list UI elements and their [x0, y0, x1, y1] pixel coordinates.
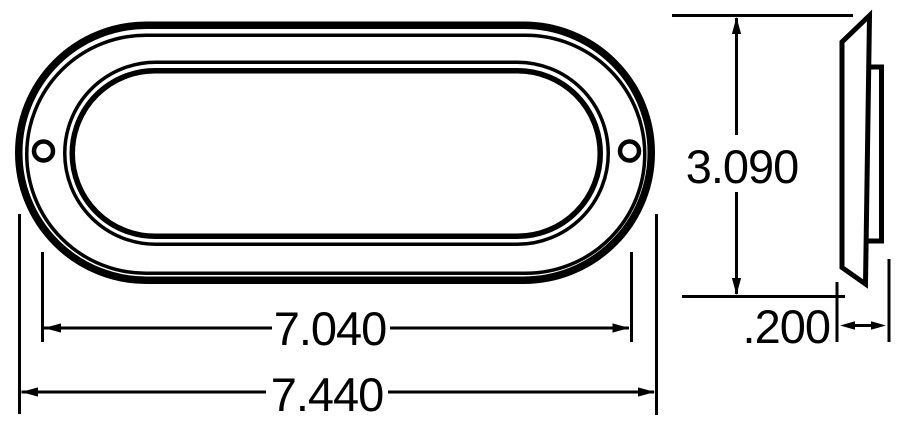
arrowhead-7440-left	[21, 387, 38, 396]
arrowhead-3090-up	[732, 17, 741, 34]
arrowhead-200-right	[871, 321, 886, 330]
dimension-overall-height: 3.090	[672, 16, 853, 297]
side-view	[842, 16, 882, 285]
front-view	[19, 25, 652, 280]
arrowhead-3090-down	[732, 278, 741, 295]
dimension-label-overall-width: 7.440	[271, 368, 384, 421]
dimension-lens-width: 7.040	[43, 252, 632, 355]
lamp-dimension-drawing: 7.040 7.440 3.090	[0, 0, 906, 431]
arrowhead-200-left	[840, 321, 855, 330]
arrowhead-7440-right	[638, 387, 655, 396]
right-mounting-hole	[620, 142, 639, 161]
dimension-label-overall-height: 3.090	[686, 140, 799, 193]
arrowhead-7040-right	[613, 323, 630, 332]
arrowhead-7040-left	[44, 323, 61, 332]
flange-plate-profile	[842, 16, 870, 285]
dimension-label-flange-depth: .200	[743, 300, 830, 353]
lens-bezel-outer-ring	[65, 62, 609, 244]
technical-drawing-canvas: 7.040 7.440 3.090	[0, 0, 906, 431]
lens-bezel-inner-ring	[72, 71, 600, 237]
dimension-label-lens-width: 7.040	[274, 302, 387, 355]
left-mounting-hole	[34, 142, 53, 161]
